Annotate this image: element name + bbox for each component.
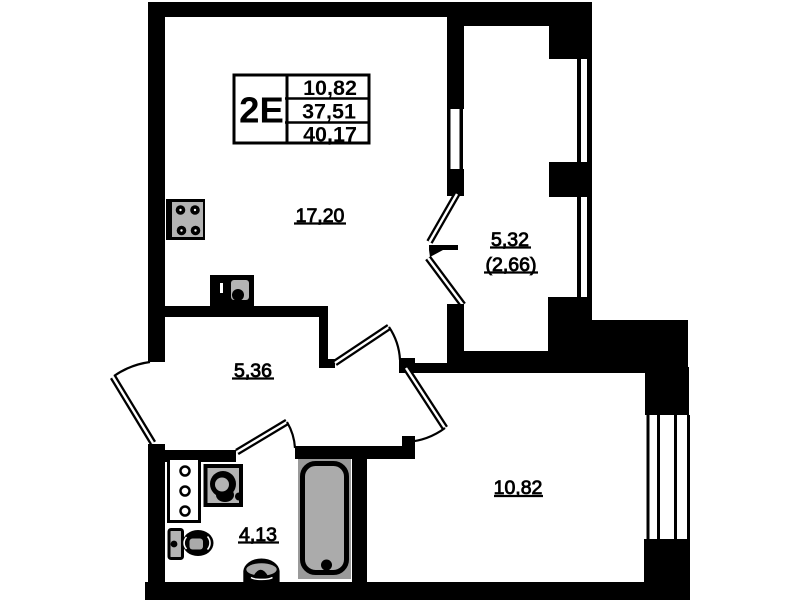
svg-text:10,82: 10,82 [303,76,357,100]
svg-text:37,51: 37,51 [302,100,356,124]
svg-text:2Е: 2Е [239,90,284,131]
svg-text:40,17: 40,17 [303,123,357,147]
